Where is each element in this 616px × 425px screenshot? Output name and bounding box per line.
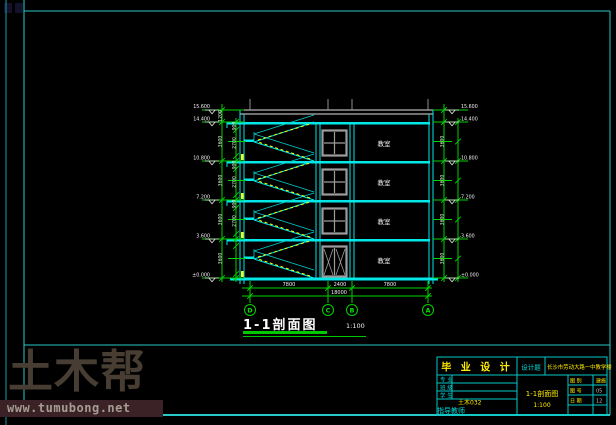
room-label: 教室 xyxy=(378,217,392,226)
watermark-url-text: www.tumubong.net xyxy=(0,400,163,417)
class-value-text: 土木032 xyxy=(458,399,482,407)
axis-letter: C xyxy=(326,306,331,314)
elevation-text: 14.400 xyxy=(193,117,210,123)
cad-screenshot: 教室 教室 教室 教室 1200 3600 3600 xyxy=(0,0,616,425)
elevation-text: 10.800 xyxy=(461,156,478,162)
dim-text: 3600 xyxy=(218,214,224,226)
drawing-scale-text: 1:100 xyxy=(533,402,550,409)
info-value: 建施 xyxy=(596,377,606,384)
info-value: 05 xyxy=(596,388,602,394)
dim-text: 2700 xyxy=(232,176,238,188)
project-name-text: 毕 业 设 计 xyxy=(441,361,512,374)
title-block: 毕 业 设 计 设计题 长沙市劳动大路一中教学楼 专 业 班 级 学 生 土木0… xyxy=(437,357,612,415)
elevation-text: 3.600 xyxy=(196,234,210,240)
design-title-label: 设计题 xyxy=(521,363,541,372)
screen-artifacts xyxy=(4,3,23,13)
axis-letter: A xyxy=(425,306,430,314)
elevation-text: 10.800 xyxy=(193,156,210,162)
dim-text: 900 xyxy=(232,200,238,209)
elevation-text: 3.600 xyxy=(461,234,475,240)
elevation-text: ±0.000 xyxy=(192,273,210,279)
windows xyxy=(323,131,347,234)
dim-text: 3600 xyxy=(218,253,224,265)
right-dimensions: 3600 3600 3600 3600 15.600 14.400 10.800… xyxy=(433,104,479,282)
dim-text: 2700 xyxy=(232,215,238,227)
watermark-logo: 土木帮 xyxy=(8,344,168,400)
dim-text: 7800 xyxy=(384,282,397,288)
axis-letter: D xyxy=(247,306,253,314)
elevation-text: ±0.000 xyxy=(461,273,479,279)
axis-letter: B xyxy=(350,306,355,314)
info-value: 12 xyxy=(596,398,602,404)
titleblock-row-label: 学 生 xyxy=(440,392,453,400)
dim-text: 3600 xyxy=(218,136,224,148)
left-dimensions: 1200 3600 3600 3600 3600 900 2700 900 27… xyxy=(192,104,246,282)
dim-text: 3600 xyxy=(440,136,446,148)
elevation-text: 14.400 xyxy=(461,117,478,123)
entrance-door-icon xyxy=(323,247,347,277)
bottom-dimensions: 7800 2400 7800 18000 D C B A xyxy=(242,281,434,316)
dim-text: 900 xyxy=(232,161,238,170)
titleblock-row-label: 班 级 xyxy=(440,384,453,392)
building-section: 教室 教室 教室 教室 xyxy=(227,99,438,284)
right-elevation-markers: 15.600 14.400 10.800 7.200 3.600 ±0.000 xyxy=(445,104,479,282)
advisor-label: 指导教师 xyxy=(437,406,465,415)
axis-bubbles xyxy=(245,305,434,316)
elevation-text: 7.200 xyxy=(461,195,475,201)
dim-text: 1200 xyxy=(218,110,224,122)
staircase xyxy=(244,115,314,278)
room-label: 教室 xyxy=(378,178,392,187)
drawing-name-text: 1-1剖面图 xyxy=(526,389,558,398)
elevation-text: 7.200 xyxy=(196,195,210,201)
room-label: 教室 xyxy=(378,256,392,265)
info-label: 日 期 xyxy=(570,398,582,404)
window-icon xyxy=(323,209,347,234)
dim-text: 2400 xyxy=(334,282,347,288)
left-elevation-markers: 15.600 14.400 10.800 7.200 3.600 ±0.000 xyxy=(192,104,219,282)
dim-text: 2700 xyxy=(232,137,238,149)
dim-text: 3600 xyxy=(440,253,446,265)
roof-parapet xyxy=(240,99,433,114)
titleblock-row-label: 专 业 xyxy=(440,376,453,384)
dim-text: 18000 xyxy=(331,290,347,296)
section-scale-text: 1:100 xyxy=(346,322,365,330)
dim-text: 900 xyxy=(232,122,238,131)
section-caption: 1-1剖面图 1:100 xyxy=(243,317,366,337)
watermark-url-bar: www.tumubong.net xyxy=(0,400,163,417)
info-label: 图 别 xyxy=(570,377,582,384)
design-title-text: 长沙市劳动大路一中教学楼 xyxy=(547,363,612,371)
window-icon xyxy=(323,170,347,195)
dim-text: 3600 xyxy=(440,214,446,226)
dim-text: 3600 xyxy=(218,175,224,187)
walls xyxy=(240,110,433,284)
elevation-text: 15.600 xyxy=(193,104,210,110)
room-label: 教室 xyxy=(378,139,392,148)
info-label: 图 号 xyxy=(570,388,582,394)
section-title-text: 1-1剖面图 xyxy=(243,317,318,333)
window-icon xyxy=(323,131,347,156)
dim-text: 7800 xyxy=(283,282,296,288)
elevation-text: 15.600 xyxy=(461,104,478,110)
dim-text: 3600 xyxy=(440,175,446,187)
